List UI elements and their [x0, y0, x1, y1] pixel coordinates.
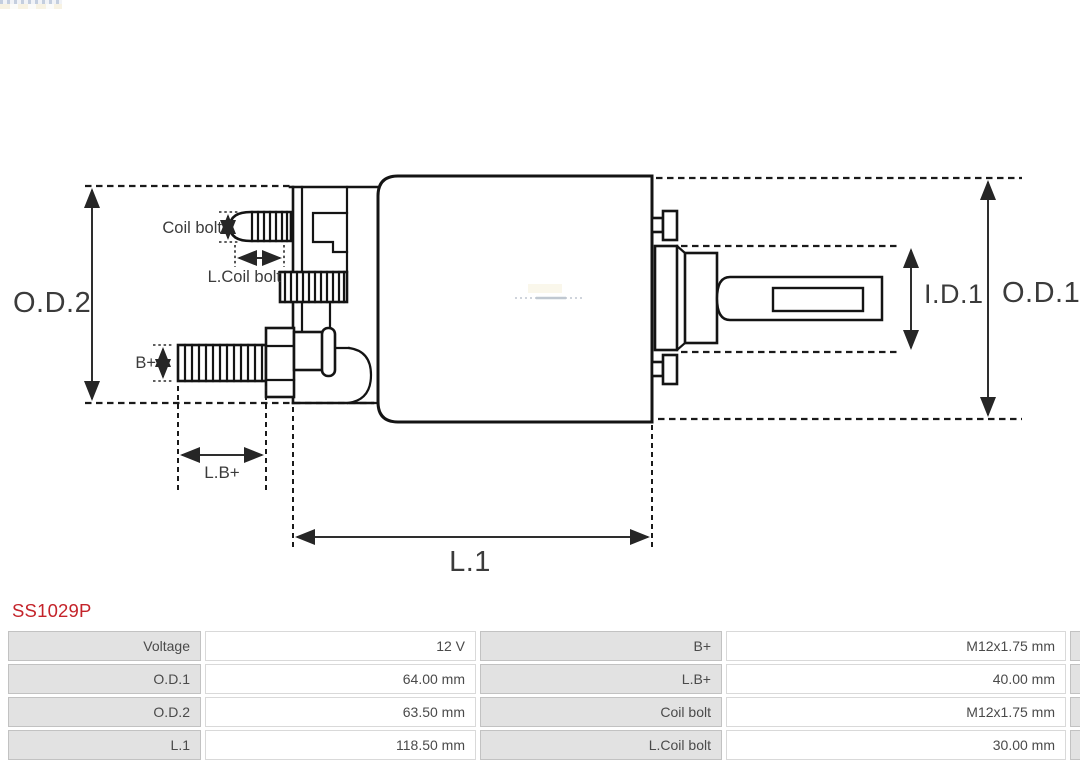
- od2-label: O.D.2: [13, 287, 91, 319]
- spec-label: O.D.2: [8, 697, 201, 727]
- part-number: SS1029P: [12, 600, 92, 622]
- b-plus-bolt-graphic: [178, 345, 266, 381]
- spec-label: Voltage: [8, 631, 201, 661]
- spec-value: M12x1.75 mm: [726, 631, 1066, 661]
- coil-bolt-graphic: [230, 212, 291, 241]
- spec-label-cutoff: [1070, 730, 1080, 760]
- coil-bolt-label: Coil bolt: [162, 219, 222, 237]
- solenoid-technical-drawing: O.D.2 Coil bolt L.Coil bolt B+ L.B+ L.1 …: [0, 0, 1080, 598]
- spec-value: 40.00 mm: [726, 664, 1066, 694]
- l-b-plus-label: L.B+: [204, 463, 240, 482]
- id1-label: I.D.1: [924, 279, 984, 309]
- spec-label-cutoff: [1070, 631, 1080, 661]
- spec-value: 30.00 mm: [726, 730, 1066, 760]
- b-plus-label: B+: [135, 354, 156, 372]
- spec-value: 12 V: [205, 631, 476, 661]
- spec-label: B+: [480, 631, 722, 661]
- spec-label-cutoff: [1070, 697, 1080, 727]
- spec-table: Voltage 12 V B+ M12x1.75 mm O.D.1 64.00 …: [8, 631, 1080, 760]
- spec-label: O.D.1: [8, 664, 201, 694]
- spec-label: L.B+: [480, 664, 722, 694]
- plunger-graphic: [655, 246, 882, 350]
- spec-label: Coil bolt: [480, 697, 722, 727]
- spec-value: 118.50 mm: [205, 730, 476, 760]
- l1-dimension: [293, 407, 652, 547]
- l-coil-bolt-dimension: [235, 245, 284, 267]
- spec-label: L.Coil bolt: [480, 730, 722, 760]
- l1-label: L.1: [449, 546, 491, 578]
- spec-value: M12x1.75 mm: [726, 697, 1066, 727]
- l-coil-bolt-label: L.Coil bolt: [208, 268, 282, 286]
- spec-label-cutoff: [1070, 664, 1080, 694]
- b-plus-dimension: [153, 345, 174, 381]
- spec-value: 63.50 mm: [205, 697, 476, 727]
- spec-label: L.1: [8, 730, 201, 760]
- od1-label: O.D.1: [1002, 277, 1080, 309]
- coil-bolt-thread-boss: [280, 272, 347, 302]
- b-plus-nut-graphic: [266, 328, 335, 397]
- spec-value: 64.00 mm: [205, 664, 476, 694]
